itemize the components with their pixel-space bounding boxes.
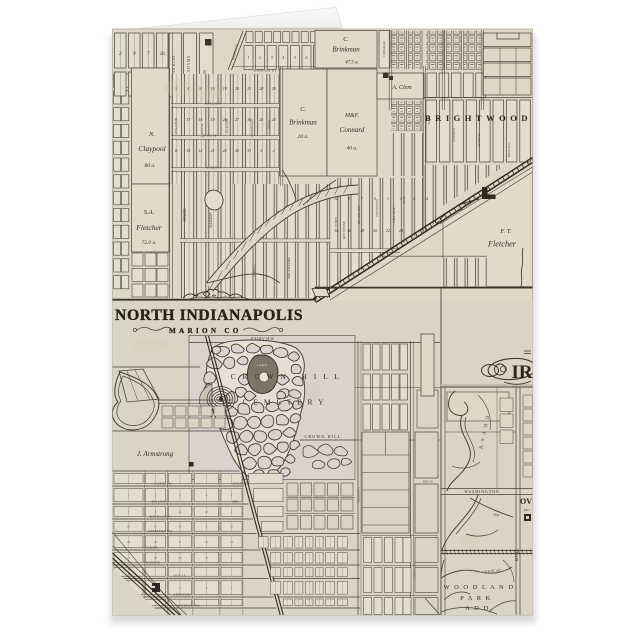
svg-text:STATION: STATION — [452, 128, 456, 142]
svg-text:16: 16 — [127, 525, 131, 529]
svg-text:C.Brinkman: C.Brinkman — [382, 40, 386, 57]
svg-text:20: 20 — [235, 86, 239, 91]
svg-text:WALNUT: WALNUT — [152, 500, 168, 504]
svg-text:19: 19 — [230, 525, 234, 529]
svg-text:14: 14 — [230, 540, 234, 544]
svg-text:Brinkman: Brinkman — [332, 46, 360, 54]
svg-text:1: 1 — [248, 56, 250, 60]
svg-text:8: 8 — [175, 148, 177, 153]
svg-text:ADAMS: ADAMS — [186, 56, 191, 73]
svg-text:40 a.: 40 a. — [347, 145, 358, 152]
svg-text:17: 17 — [154, 525, 158, 529]
svg-text:ALBERTA: ALBERTA — [206, 166, 223, 170]
svg-text:A D D.: A D D. — [465, 605, 493, 612]
svg-text:5: 5 — [260, 148, 262, 153]
svg-text:SENATE: SENATE — [183, 208, 187, 222]
svg-text:IR: IR — [511, 362, 532, 383]
svg-text:18: 18 — [223, 86, 227, 91]
svg-text:P A R K: P A R K — [460, 595, 492, 602]
svg-text:3: 3 — [271, 56, 273, 60]
svg-text:HILLSIDE: HILLSIDE — [392, 207, 396, 223]
svg-text:AVENUE: AVENUE — [232, 482, 248, 486]
svg-text:Fletcher: Fletcher — [487, 240, 517, 249]
svg-text:ARMSTRONG: ARMSTRONG — [148, 529, 173, 533]
svg-text:2: 2 — [273, 148, 275, 153]
svg-text:Connard: Connard — [340, 126, 365, 134]
svg-text:16: 16 — [347, 229, 351, 233]
svg-text:9: 9 — [348, 197, 350, 201]
svg-text:3: 3 — [387, 197, 389, 201]
svg-text:S.A.: S.A. — [144, 209, 155, 216]
svg-text:FRANCIS: FRANCIS — [144, 561, 161, 565]
svg-text:4: 4 — [282, 56, 284, 60]
svg-text:CHELSEA: CHELSEA — [205, 102, 222, 106]
svg-text:AVE: AVE — [232, 500, 238, 504]
svg-text:29: 29 — [272, 86, 276, 91]
svg-text:ADDISON: ADDISON — [173, 593, 191, 597]
svg-text:M&F.: M&F. — [344, 113, 359, 119]
svg-text:KEYSTONE: KEYSTONE — [342, 221, 346, 239]
svg-text:5: 5 — [294, 56, 296, 60]
svg-text:12: 12 — [178, 510, 182, 514]
svg-text:BOULEVARD: BOULEVARD — [287, 257, 291, 279]
svg-text:OV: OV — [520, 497, 532, 506]
svg-text:SENATE: SENATE — [174, 121, 178, 134]
svg-text:J. Armstrong: J. Armstrong — [137, 450, 174, 458]
svg-text:20 a.: 20 a. — [298, 134, 309, 140]
svg-text:CATALPA: CATALPA — [154, 482, 171, 486]
svg-text:72.0 a.: 72.0 a. — [141, 240, 156, 246]
svg-text:C R O W N H I L L: C R O W N H I L L — [231, 372, 342, 381]
svg-text:1: 1 — [400, 197, 402, 201]
svg-text:C E M E T E R Y: C E M E T E R Y — [243, 398, 326, 407]
svg-text:PENN: PENN — [267, 119, 271, 129]
svg-text:Claypool: Claypool — [138, 144, 166, 153]
svg-text:F. T.: F. T. — [499, 228, 512, 235]
svg-text:20: 20 — [127, 540, 131, 544]
svg-text:W O O D L A N D: W O O D L A N D — [443, 584, 514, 591]
svg-text:47.5 a.: 47.5 a. — [345, 61, 359, 66]
svg-text:C.: C. — [343, 37, 349, 43]
svg-text:PINE: PINE — [402, 196, 406, 204]
svg-text:13: 13 — [205, 510, 209, 514]
svg-text:C.: C. — [300, 107, 306, 113]
svg-text:ODELL: ODELL — [174, 574, 187, 578]
svg-text:25: 25 — [205, 556, 209, 560]
svg-text:M.C.: M.C. — [524, 508, 531, 512]
svg-text:5: 5 — [374, 197, 376, 201]
svg-text:25: 25 — [259, 117, 263, 122]
svg-text:42D ST: 42D ST — [423, 481, 433, 484]
svg-text:15: 15 — [186, 148, 190, 153]
svg-text:24: 24 — [272, 117, 276, 122]
svg-text:23: 23 — [154, 556, 158, 560]
svg-text:HAWKINS: HAWKINS — [171, 55, 176, 77]
svg-text:18: 18 — [360, 229, 364, 233]
svg-text:19: 19 — [211, 117, 215, 122]
svg-text:22: 22 — [154, 540, 158, 544]
svg-text:Fletcher: Fletcher — [135, 223, 161, 232]
svg-text:26: 26 — [235, 148, 239, 153]
svg-text:WASHINGTON: WASHINGTON — [464, 490, 499, 494]
svg-text:80 a.: 80 a. — [145, 163, 156, 169]
svg-text:12: 12 — [334, 197, 338, 201]
svg-text:ILLINOIS: ILLINOIS — [209, 212, 213, 227]
svg-text:6: 6 — [175, 117, 177, 122]
svg-text:6: 6 — [306, 56, 308, 60]
svg-text:A. Clem: A. Clem — [391, 85, 412, 91]
svg-text:2: 2 — [259, 56, 261, 60]
svg-text:CROWN HILL: CROWN HILL — [305, 434, 342, 439]
svg-text:DEARBORN: DEARBORN — [357, 205, 361, 224]
svg-text:KIRKLAND: KIRKLAND — [150, 515, 171, 519]
svg-text:BRIGHTWOOD: BRIGHTWOOD — [425, 113, 531, 123]
svg-text:D CLIFF: D CLIFF — [203, 134, 217, 138]
svg-text:16: 16 — [160, 52, 166, 57]
svg-text:DAVIDSON: DAVIDSON — [375, 199, 379, 217]
svg-text:20: 20 — [373, 229, 377, 233]
svg-text:22: 22 — [223, 148, 227, 153]
svg-text:YORK: YORK — [427, 115, 431, 125]
svg-text:21: 21 — [211, 148, 215, 153]
svg-text:14: 14 — [334, 229, 338, 233]
svg-text:ILLINOIS: ILLINOIS — [225, 119, 229, 134]
svg-text:SCHOOL: SCHOOL — [477, 133, 481, 147]
svg-text:N.: N. — [148, 131, 155, 138]
svg-text:21: 21 — [247, 86, 251, 91]
svg-text:BROOKS: BROOKS — [507, 143, 511, 157]
svg-text:24: 24 — [399, 229, 403, 233]
svg-text:14: 14 — [198, 117, 202, 122]
svg-text:EUGENE: EUGENE — [142, 546, 158, 550]
svg-text:31: 31 — [247, 148, 251, 153]
svg-text:STATE: STATE — [334, 217, 338, 227]
svg-text:MANGUS ST: MANGUS ST — [253, 69, 277, 73]
svg-text:12: 12 — [198, 148, 202, 153]
svg-text:Brinkman: Brinkman — [289, 119, 317, 127]
svg-text:21: 21 — [127, 556, 131, 560]
svg-text:4: 4 — [426, 197, 428, 201]
svg-text:CAPITOL: CAPITOL — [200, 123, 204, 138]
svg-text:SHOEMAKER: SHOEMAKER — [176, 604, 201, 608]
svg-text:MERIDIAN: MERIDIAN — [250, 119, 254, 137]
svg-text:9: 9 — [199, 86, 201, 91]
svg-text:22: 22 — [386, 229, 390, 233]
svg-text:MARION CO: MARION CO — [169, 327, 241, 335]
svg-text:LAKE: LAKE — [257, 363, 268, 367]
svg-text:MILBURN: MILBURN — [357, 487, 361, 503]
svg-text:24: 24 — [178, 556, 182, 560]
svg-text:NORTH INDIANAPOLIS: NORTH INDIANAPOLIS — [115, 307, 303, 324]
svg-text:28: 28 — [259, 86, 263, 91]
svg-text:18: 18 — [178, 525, 182, 529]
svg-text:2: 2 — [413, 197, 415, 201]
